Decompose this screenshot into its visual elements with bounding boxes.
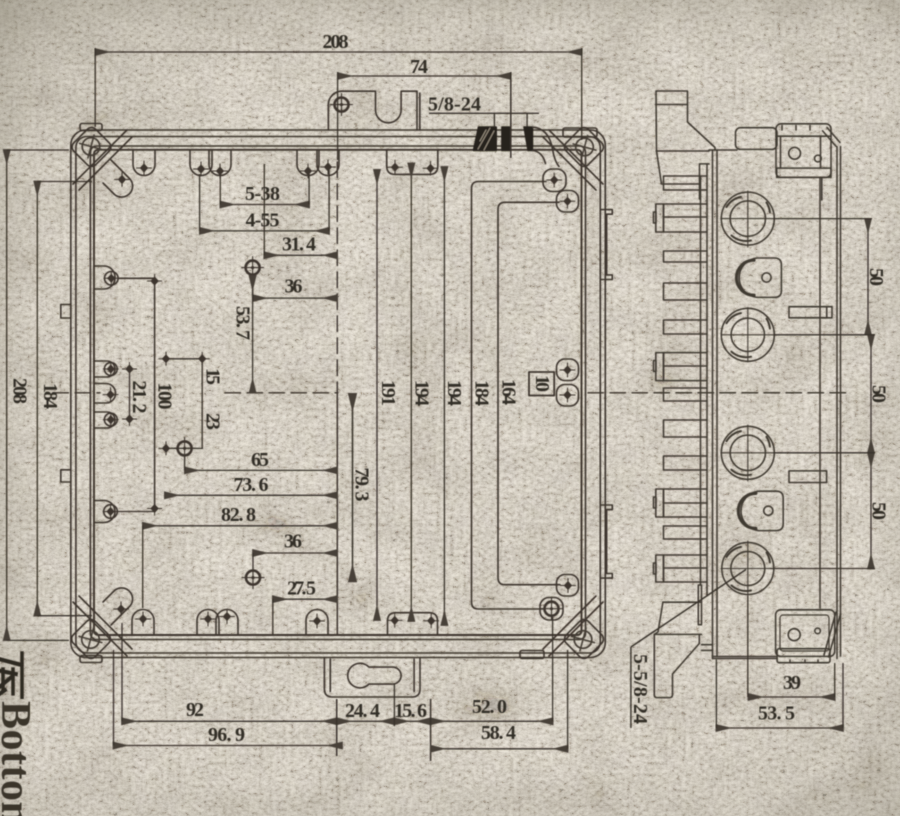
svg-text:5-5/8-24: 5-5/8-24 — [629, 654, 651, 724]
svg-text:5-38: 5-38 — [245, 183, 280, 205]
svg-text:208: 208 — [9, 378, 31, 404]
svg-text:Bottom: Bottom — [0, 701, 38, 816]
svg-text:15: 15 — [202, 368, 224, 385]
svg-text:194: 194 — [411, 380, 433, 406]
svg-text:50: 50 — [868, 502, 890, 520]
svg-text:79. 3: 79. 3 — [351, 468, 373, 502]
svg-text:191: 191 — [377, 380, 399, 406]
svg-text:36: 36 — [284, 531, 302, 553]
svg-text:82. 8: 82. 8 — [221, 504, 256, 526]
svg-text:53. 5: 53. 5 — [758, 703, 795, 725]
svg-text:36: 36 — [285, 276, 303, 298]
svg-text:53. 7: 53. 7 — [232, 306, 254, 340]
svg-text:164: 164 — [498, 379, 520, 405]
svg-text:5/8-24: 5/8-24 — [428, 94, 481, 116]
svg-text:58. 4: 58. 4 — [481, 722, 516, 744]
svg-text:65: 65 — [251, 449, 269, 471]
svg-text:52. 0: 52. 0 — [472, 696, 507, 718]
svg-text:27. 5: 27. 5 — [287, 578, 316, 600]
svg-text:39: 39 — [783, 672, 801, 694]
svg-text:15. 6: 15. 6 — [394, 700, 427, 722]
svg-text:208: 208 — [323, 31, 349, 53]
svg-text:100: 100 — [154, 383, 176, 410]
svg-text:24. 4: 24. 4 — [345, 700, 380, 722]
svg-text:194: 194 — [443, 380, 465, 406]
svg-text:4-55: 4-55 — [246, 210, 280, 232]
svg-text:23: 23 — [202, 413, 224, 430]
svg-text:50: 50 — [865, 268, 887, 286]
svg-text:96. 9: 96. 9 — [208, 724, 245, 746]
svg-text:184: 184 — [39, 383, 61, 409]
svg-text:92: 92 — [186, 699, 204, 721]
svg-text:21. 2: 21. 2 — [128, 381, 150, 414]
svg-text:10: 10 — [531, 375, 553, 392]
svg-text:184: 184 — [471, 380, 493, 406]
svg-text:74: 74 — [410, 56, 428, 78]
svg-text:50: 50 — [868, 385, 890, 403]
svg-text:31. 4: 31. 4 — [282, 234, 316, 256]
svg-text:73. 6: 73. 6 — [234, 474, 269, 496]
